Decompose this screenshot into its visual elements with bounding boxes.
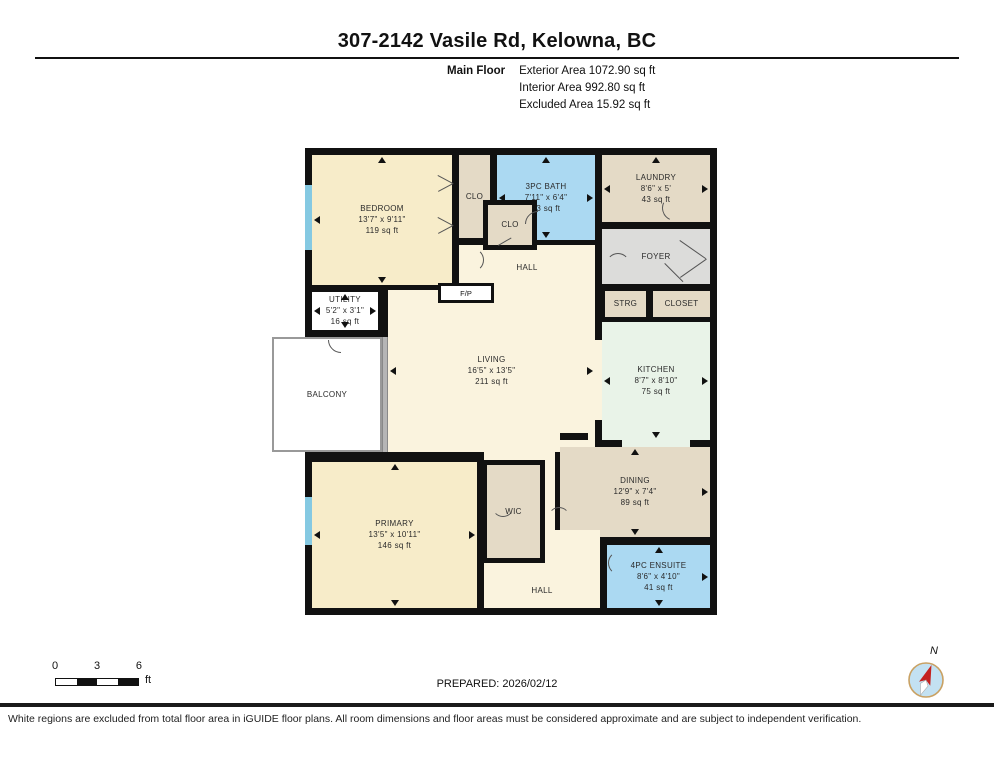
header-divider [35, 57, 959, 59]
dimension-arrow-l [314, 307, 320, 315]
scale-tick-3: 3 [94, 660, 100, 672]
room-name: STRG [614, 299, 637, 309]
room-dining-label: DINING 12'9" x 7'4" 89 sq ft [560, 447, 710, 537]
room-living-label: LIVING 16'5" x 13'5" 211 sq ft [388, 290, 595, 452]
dimension-arrow-d [391, 600, 399, 606]
room-area: 89 sq ft [621, 498, 650, 508]
room-dims: 8'7" x 8'10" [634, 376, 677, 386]
room-name: CLO [501, 220, 518, 230]
dimension-arrow-u [631, 449, 639, 455]
scale-ticks: 0 3 6 [52, 660, 142, 672]
dimension-arrow-u [378, 157, 386, 163]
room-dims: 13'5" x 10'11" [369, 530, 421, 540]
dimension-arrow-r [370, 307, 376, 315]
room-laundry: LAUNDRY 8'6" x 5' 43 sq ft [602, 155, 710, 222]
scale-tick-0: 0 [52, 660, 58, 672]
wall-stub [560, 433, 588, 440]
door-arc [460, 248, 484, 272]
interior-area: Interior Area 992.80 sq ft [519, 82, 655, 94]
dimension-arrow-u [652, 157, 660, 163]
room-name: LIVING [477, 355, 505, 365]
room-dims: 5'2" x 3'1" [326, 306, 364, 316]
prepared-date: PREPARED: 2026/02/12 [0, 678, 994, 690]
room-living: LIVING 16'5" x 13'5" 211 sq ft [388, 290, 595, 452]
room-area: 146 sq ft [378, 541, 411, 551]
dimension-arrow-r [702, 377, 708, 385]
dimension-arrow-l [390, 367, 396, 375]
room-closet: CLOSET [653, 291, 710, 317]
room-name: BEDROOM [360, 204, 403, 214]
dimension-arrow-u [341, 294, 349, 300]
room-closet-label: CLOSET [653, 291, 710, 317]
window-primary [305, 497, 312, 545]
room-dining: DINING 12'9" x 7'4" 89 sq ft [560, 447, 710, 537]
dimension-arrow-d [652, 432, 660, 438]
disclaimer-text: White regions are excluded from total fl… [8, 713, 861, 725]
room-closet-a: CLO [459, 155, 490, 238]
fireplace: F/P [438, 283, 494, 303]
room-area: 119 sq ft [366, 226, 399, 236]
excluded-area: Excluded Area 15.92 sq ft [519, 99, 655, 111]
room-area: 211 sq ft [475, 377, 508, 387]
door-arc [608, 551, 632, 575]
room-storage-label: STRG [605, 291, 646, 317]
dimension-arrow-d [655, 600, 663, 606]
room-name: PRIMARY [375, 519, 413, 529]
floor-area-summary: Main Floor Exterior Area 1072.90 sq ft I… [447, 65, 655, 111]
dimension-arrow-r [469, 531, 475, 539]
dimension-arrow-r [702, 185, 708, 193]
room-name: LAUNDRY [636, 173, 676, 183]
room-balcony: BALCONY [272, 337, 382, 452]
room-bedroom: BEDROOM 13'7" x 9'11" 119 sq ft [312, 155, 452, 285]
room-primary-label: PRIMARY 13'5" x 10'11" 146 sq ft [312, 462, 477, 608]
dimension-arrow-r [702, 573, 708, 581]
room-dims: 8'6" x 5' [641, 184, 671, 194]
floor-plan: BEDROOM 13'7" x 9'11" 119 sq ft CLO 3PC … [270, 145, 722, 623]
dimension-arrow-l [604, 377, 610, 385]
dimension-arrow-u [391, 464, 399, 470]
exterior-area: Exterior Area 1072.90 sq ft [519, 65, 655, 77]
room-bedroom-label: BEDROOM 13'7" x 9'11" 119 sq ft [312, 155, 452, 285]
dimension-arrow-u [655, 547, 663, 553]
room-name: CLO [466, 192, 483, 202]
room-name: FOYER [641, 252, 670, 262]
room-dims: 12'9" x 7'4" [613, 487, 656, 497]
dimension-arrow-l [314, 216, 320, 224]
room-utility: UTILITY 5'2" x 3'1" 16 sq ft [312, 292, 378, 330]
dimension-arrow-r [587, 194, 593, 202]
room-kitchen-label: KITCHEN 8'7" x 8'10" 75 sq ft [602, 322, 710, 440]
dimension-arrow-r [702, 488, 708, 496]
dimension-arrow-l [314, 531, 320, 539]
room-name: HALL [531, 586, 552, 596]
dimension-arrow-d [631, 529, 639, 535]
compass-north-label: N [930, 645, 938, 657]
room-dims: 13'7" x 9'11" [358, 215, 405, 225]
scale-tick-6: 6 [136, 660, 142, 672]
room-storage: STRG [605, 291, 646, 317]
room-name: KITCHEN [637, 365, 674, 375]
room-area: 75 sq ft [642, 387, 671, 397]
dimension-arrow-r [587, 367, 593, 375]
floor-label: Main Floor [447, 65, 505, 111]
fireplace-label: F/P [460, 289, 472, 298]
door-arc [548, 507, 570, 529]
dimension-arrow-l [604, 185, 610, 193]
room-name: HALL [516, 263, 537, 273]
room-area: 41 sq ft [644, 583, 673, 593]
room-name: 4PC ENSUITE [631, 561, 687, 571]
passage-kitchen-dining [622, 440, 690, 447]
room-name: BALCONY [307, 390, 347, 399]
room-name: DINING [620, 476, 650, 486]
door-arc [606, 253, 630, 277]
sliding-door [382, 337, 388, 452]
room-name: CLOSET [665, 299, 699, 309]
room-dims: 7'11" x 6'4" [525, 193, 567, 203]
door-arc [492, 495, 514, 517]
passage-living-kitchen [595, 340, 602, 420]
dimension-arrow-l [499, 194, 505, 202]
footer-divider [0, 703, 994, 707]
room-name: 3PC BATH [526, 182, 567, 192]
room-dims: 8'6" x 4'10" [637, 572, 680, 582]
room-balcony-label: BALCONY [274, 339, 380, 450]
compass-icon: N [900, 643, 954, 710]
room-closet-a-label: CLO [459, 155, 490, 238]
dimension-arrow-u [542, 157, 550, 163]
page-title: 307-2142 Vasile Rd, Kelowna, BC [0, 30, 994, 53]
room-laundry-label: LAUNDRY 8'6" x 5' 43 sq ft [602, 155, 710, 222]
room-kitchen: KITCHEN 8'7" x 8'10" 75 sq ft [602, 322, 710, 440]
room-dims: 16'5" x 13'5" [468, 366, 516, 376]
dimension-arrow-d [378, 277, 386, 283]
room-primary: PRIMARY 13'5" x 10'11" 146 sq ft [312, 462, 477, 608]
window-bedroom [305, 185, 312, 250]
